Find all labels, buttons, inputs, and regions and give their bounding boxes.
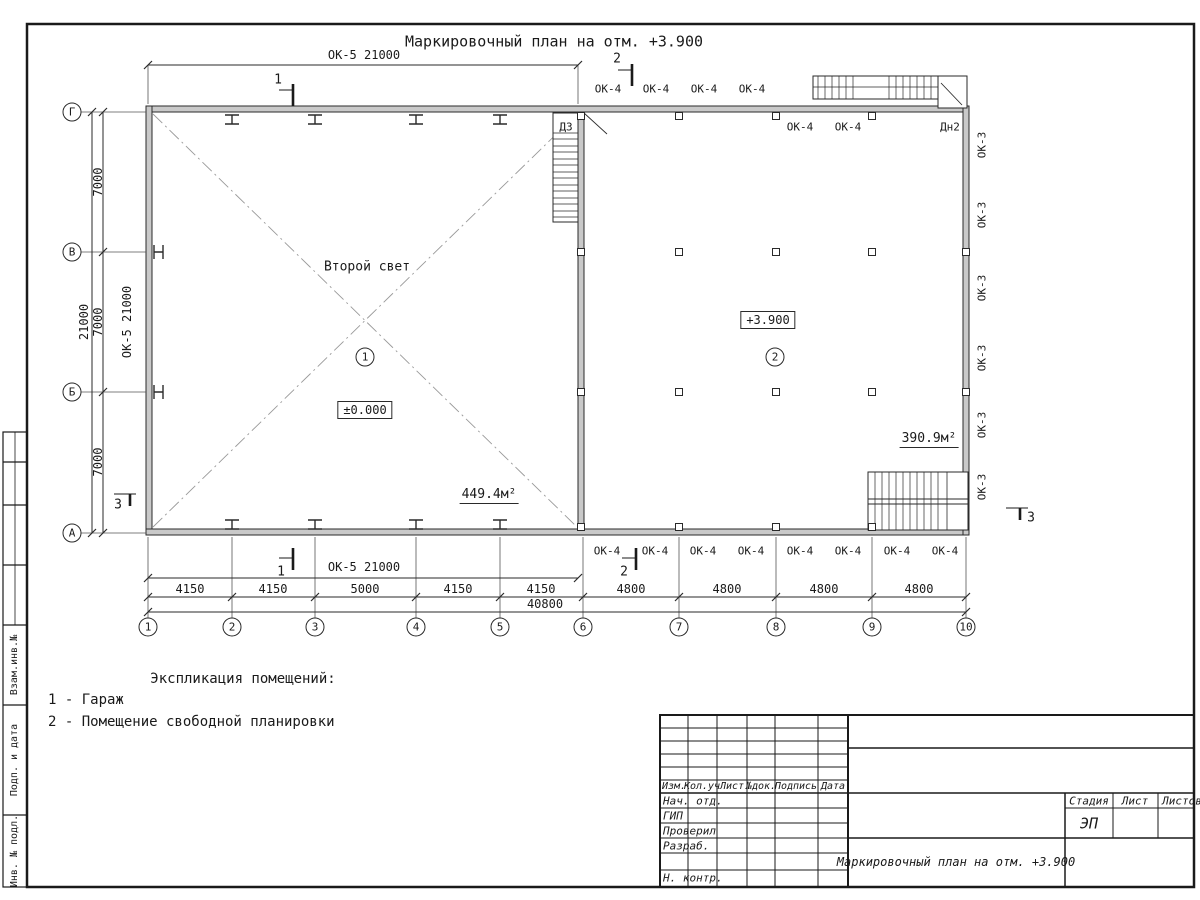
axis-col-label: 10	[959, 622, 972, 633]
window-mark-ok3: ОК-3	[977, 202, 988, 229]
explication-item: 2 - Помещение свободной планировки	[48, 715, 335, 729]
dim-bottom: 4150	[527, 583, 556, 595]
titleblock-row-proveril: Проверил	[663, 826, 716, 837]
window-mark-ok5: ОК-5 21000	[121, 286, 133, 358]
margin-label-vzam: Взам.инв.№	[10, 635, 20, 695]
axis-row-label: А	[69, 528, 76, 539]
window-mark-ok4: ОК-4	[787, 546, 814, 557]
door-mark-dn2: Дн2	[940, 122, 960, 133]
window-mark-ok5: ОК-5 21000	[328, 561, 400, 573]
dim-left: 7000	[92, 448, 104, 477]
window-mark-ok4: ОК-4	[690, 546, 717, 557]
axis-col-label: 6	[580, 622, 587, 633]
void-diagonals	[153, 114, 577, 527]
dim-left: 7000	[92, 168, 104, 197]
dim-bottom: 5000	[351, 583, 380, 595]
axis-col-label: 2	[229, 622, 236, 633]
titleblock-stage-value: ЭП	[1080, 817, 1098, 832]
titleblock-doc-title: Маркировочный план на отм. +3.900	[837, 856, 1075, 868]
room2-number: 2	[772, 352, 779, 363]
axis-col-label: 4	[413, 622, 420, 633]
drawing-sheet: Маркировочный план на отм. +3.900 ОК-5 2…	[0, 0, 1200, 900]
window-mark-ok4: ОК-4	[691, 84, 718, 95]
room1-area: 449.4м²	[460, 488, 519, 504]
second-light-label: Второй свет	[324, 261, 410, 274]
titleblock-row-razrab: Разраб.	[663, 841, 709, 852]
window-mark-ok4: ОК-4	[884, 546, 911, 557]
titleblock-col-podpis: Подпись	[775, 782, 817, 792]
stair-top	[813, 76, 967, 108]
titleblock-row-nkontr: Н. контр.	[663, 873, 723, 884]
titleblock-col-ndok: №док.	[746, 782, 776, 792]
dim-bottom: 4800	[713, 583, 742, 595]
room2-area: 390.9м²	[900, 432, 959, 448]
titleblock-col-list: Лист	[720, 782, 744, 792]
dim-bottom: 4150	[259, 583, 288, 595]
window-mark-ok3: ОК-3	[977, 345, 988, 372]
section-mark-2: 2	[613, 53, 621, 66]
window-mark-ok3: ОК-3	[977, 132, 988, 159]
axis-row-label: Г	[69, 107, 76, 118]
axis-col-label: 5	[497, 622, 504, 633]
window-mark-ok4: ОК-4	[643, 84, 670, 95]
axis-row-label: В	[69, 247, 76, 258]
room2-level-mark: +3.900	[740, 311, 795, 329]
titleblock-stage-label: Стадия	[1069, 796, 1109, 807]
stair-bottom-right	[868, 472, 968, 530]
dim-bottom: 4150	[176, 583, 205, 595]
window-mark-ok4: ОК-4	[594, 546, 621, 557]
section-mark-1: 1	[274, 74, 282, 87]
axis-col-label: 1	[145, 622, 152, 633]
dim-left-total: 21000	[78, 304, 90, 340]
window-mark-ok3: ОК-3	[977, 474, 988, 501]
explication-item: 1 - Гараж	[48, 693, 124, 707]
explication-heading: Экспликация помещений:	[150, 672, 335, 686]
door-mark-d3: ДЗ	[559, 122, 572, 133]
plan-linework	[0, 0, 1200, 900]
window-mark-ok4: ОК-4	[835, 546, 862, 557]
dim-bottom-total: 40800	[527, 598, 563, 610]
window-mark-ok5: ОК-5 21000	[328, 49, 400, 61]
axis-col-label: 7	[676, 622, 683, 633]
window-mark-ok4: ОК-4	[738, 546, 765, 557]
dim-left: 7000	[92, 308, 104, 337]
room1-level-mark: ±0.000	[337, 401, 392, 419]
sheet-frame	[3, 24, 1194, 887]
dim-bottom: 4800	[810, 583, 839, 595]
window-mark-ok4: ОК-4	[932, 546, 959, 557]
section-mark-3: 3	[114, 499, 122, 512]
axis-col-label: 9	[869, 622, 876, 633]
axis-col-label: 3	[312, 622, 319, 633]
window-mark-ok4: ОК-4	[642, 546, 669, 557]
titleblock-sheet-label: Лист	[1122, 796, 1149, 807]
dim-bottom: 4800	[617, 583, 646, 595]
titleblock-col-izm: Изм.	[662, 782, 686, 792]
dim-bottom: 4150	[444, 583, 473, 595]
room-number-bubbles	[356, 348, 784, 366]
titleblock-col-data: Дата	[821, 782, 845, 792]
dim-bottom: 4800	[905, 583, 934, 595]
axis-col-label: 8	[773, 622, 780, 633]
margin-label-inv: Инв. № подл.	[10, 815, 20, 887]
titleblock-row-gip: ГИП	[663, 811, 683, 822]
window-mark-ok4: ОК-4	[739, 84, 766, 95]
room1-number: 1	[362, 352, 369, 363]
titleblock-col-koluch: Кол.уч	[684, 782, 720, 792]
margin-label-podp: Подп. и дата	[10, 724, 20, 796]
titleblock-sheets-label: Листов	[1162, 796, 1200, 807]
window-mark-ok3: ОК-3	[977, 412, 988, 439]
section-mark-2: 2	[620, 566, 628, 579]
window-mark-ok4: ОК-4	[787, 122, 814, 133]
titleblock-row-nachotd: Нач. отд.	[663, 796, 723, 807]
column-ibeams	[154, 115, 507, 529]
axis-row-label: Б	[69, 387, 76, 398]
page-title: Маркировочный план на отм. +3.900	[405, 35, 703, 50]
window-mark-ok4: ОК-4	[595, 84, 622, 95]
section-mark-1: 1	[277, 566, 285, 579]
window-mark-ok3: ОК-3	[977, 275, 988, 302]
section-mark-3: 3	[1027, 512, 1035, 525]
window-mark-ok4: ОК-4	[835, 122, 862, 133]
